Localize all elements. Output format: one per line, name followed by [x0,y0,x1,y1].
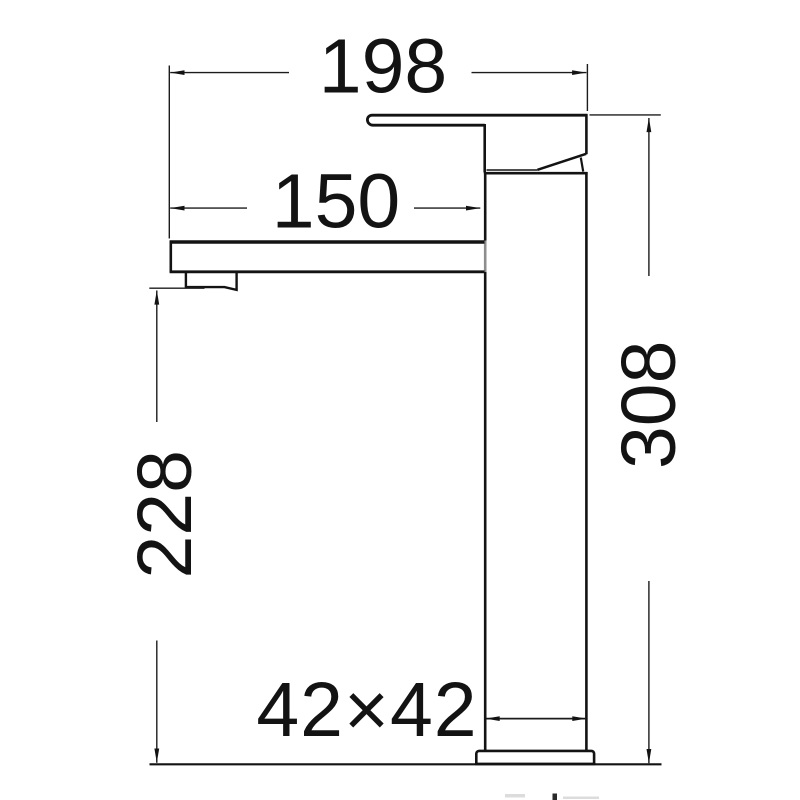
svg-text:198: 198 [319,24,447,110]
svg-text:308: 308 [606,341,692,469]
svg-text:42×42: 42×42 [256,667,477,753]
svg-text:228: 228 [122,450,208,578]
svg-text:150: 150 [272,159,400,245]
